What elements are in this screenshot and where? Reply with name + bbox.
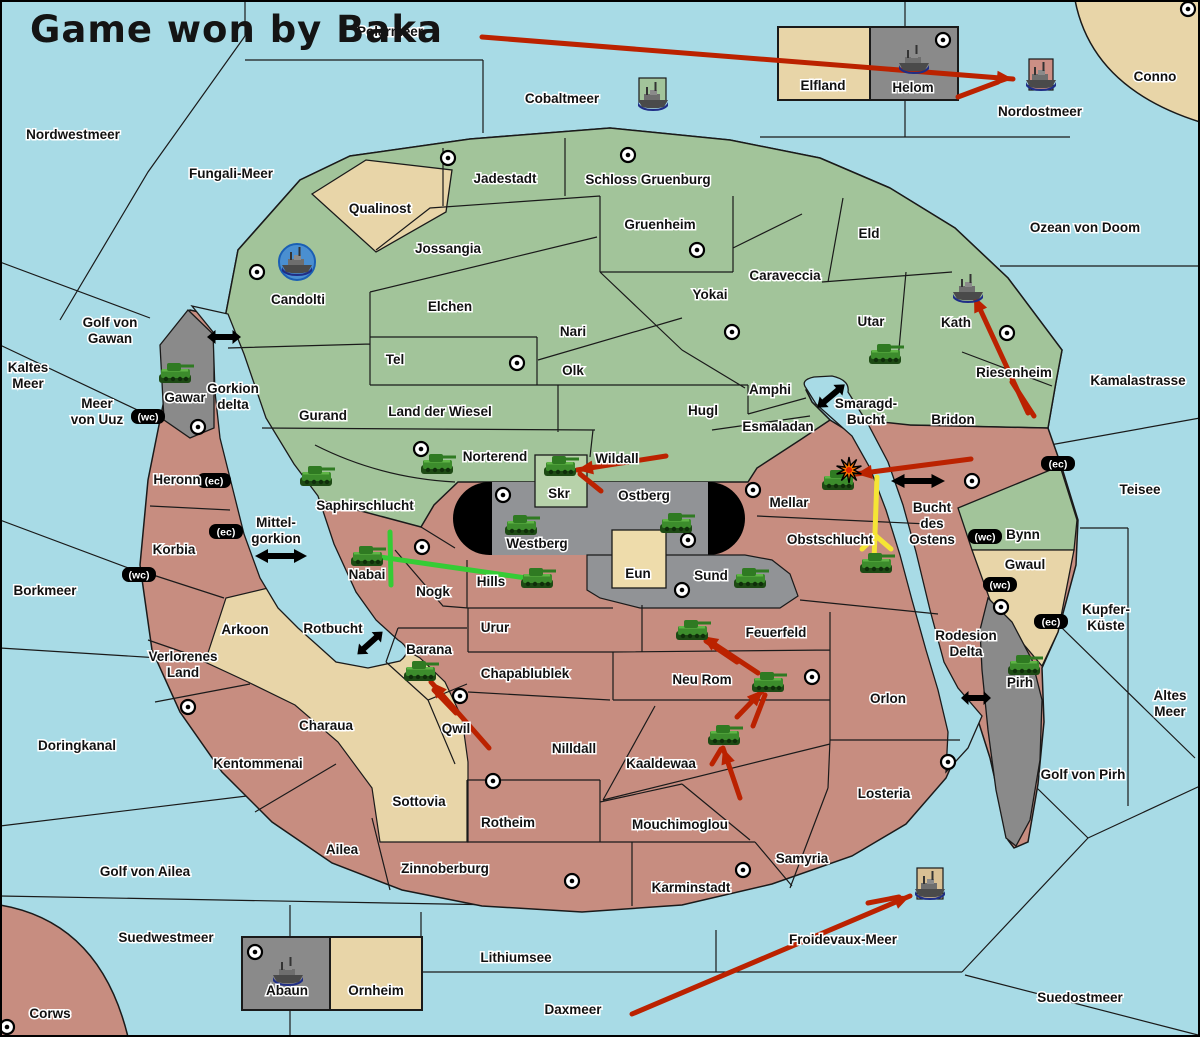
label-eun: Eun [625, 566, 651, 581]
label-rotheim: Rotheim [481, 815, 535, 830]
crossing-badge-label: (wc) [138, 412, 159, 424]
label-mellar: Mellar [769, 495, 809, 510]
label-wildall: Wildall [595, 451, 638, 466]
label-elfland: Elfland [800, 78, 845, 93]
label-gawar: Gawar [164, 390, 206, 405]
town-marker-icon [496, 488, 510, 502]
crossing-badge-label: (wc) [129, 570, 150, 582]
town-marker-icon [725, 325, 739, 339]
label-cobaltmeer: Cobaltmeer [525, 91, 600, 106]
town-marker-icon [936, 33, 950, 47]
town-marker-icon [415, 540, 429, 554]
town-marker-icon [248, 945, 262, 959]
label-borkmeer: Borkmeer [13, 583, 77, 598]
label-teisee: Teisee [1119, 482, 1161, 497]
town-marker-icon [441, 151, 455, 165]
label-conno: Conno [1134, 69, 1177, 84]
town-marker-icon [1181, 2, 1195, 16]
label-altes-meer: AltesMeer [1153, 688, 1186, 719]
label-arkoon: Arkoon [221, 622, 268, 637]
town-marker-icon [965, 474, 979, 488]
label-daxmeer: Daxmeer [544, 1002, 602, 1017]
label-saphirschlucht: Saphirschlucht [316, 498, 414, 513]
town-marker-icon [453, 689, 467, 703]
label-mouchimoglou: Mouchimoglou [632, 817, 728, 832]
label-ostberg: Ostberg [618, 488, 670, 503]
label-zinnoberburg: Zinnoberburg [401, 861, 489, 876]
label-hills: Hills [477, 574, 506, 589]
label-charaua: Charaua [299, 718, 354, 733]
crossing-badge-label: (wc) [990, 580, 1011, 592]
label-losteria: Losteria [858, 786, 911, 801]
crossing-badge-label: (ec) [217, 527, 236, 539]
label-amphi: Amphi [749, 382, 791, 397]
label-nabai: Nabai [349, 567, 386, 582]
label-suedostmeer: Suedostmeer [1037, 990, 1123, 1005]
town-marker-icon [681, 533, 695, 547]
town-marker-icon [414, 442, 428, 456]
town-marker-icon [736, 863, 750, 877]
label-lithiumsee: Lithiumsee [480, 950, 552, 965]
label-samyria: Samyria [776, 851, 829, 866]
town-marker-icon [181, 700, 195, 714]
explosion-core [846, 467, 852, 473]
label-pirh: Pirh [1007, 675, 1033, 690]
label-urur: Urur [481, 620, 510, 635]
label-kaltes-meer: KaltesMeer [8, 360, 49, 391]
label-bynn: Bynn [1006, 527, 1040, 542]
label-suedwestmeer: Suedwestmeer [118, 930, 214, 945]
town-marker-icon [1000, 326, 1014, 340]
label-caraveccia: Caraveccia [749, 268, 821, 283]
label-froidevaux-meer: Froidevaux-Meer [789, 932, 898, 947]
town-marker-icon [994, 600, 1008, 614]
label-kaaldewaa: Kaaldewaa [626, 756, 696, 771]
label-yokai: Yokai [692, 287, 727, 302]
label-orlon: Orlon [870, 691, 906, 706]
label-doringkanal: Doringkanal [38, 738, 116, 753]
label-gwaul: Gwaul [1005, 557, 1046, 572]
label-barana: Barana [406, 642, 452, 657]
label-esmaladan: Esmaladan [742, 419, 813, 434]
crossing-badge-label: (wc) [975, 532, 996, 544]
label-rotbucht: Rotbucht [303, 621, 363, 636]
label-nordwestmeer: Nordwestmeer [26, 127, 121, 142]
label-golf-von-pirh: Golf von Pirh [1041, 767, 1126, 782]
label-fungali-meer: Fungali-Meer [189, 166, 274, 181]
label-elchen: Elchen [428, 299, 472, 314]
town-marker-icon [675, 583, 689, 597]
label-schloss-gruenburg: Schloss Gruenburg [585, 172, 710, 187]
map-title: Game won by Baka [30, 8, 443, 51]
crossing-badge-label: (ec) [1042, 617, 1061, 629]
label-ozean-von-doom: Ozean von Doom [1030, 220, 1140, 235]
label-obstschlucht: Obstschlucht [787, 532, 874, 547]
label-kamalastrasse: Kamalastrasse [1090, 373, 1186, 388]
town-marker-icon [0, 1020, 14, 1034]
label-kentommenai: Kentommenai [213, 756, 302, 771]
label-qualinost: Qualinost [349, 201, 412, 216]
label-kath: Kath [941, 315, 971, 330]
label-hugl: Hugl [688, 403, 718, 418]
label-korbia: Korbia [153, 542, 196, 557]
town-marker-icon [486, 774, 500, 788]
town-marker-icon [746, 483, 760, 497]
town-marker-icon [621, 148, 635, 162]
label-corws: Corws [29, 1006, 70, 1021]
label-riesenheim: Riesenheim [976, 365, 1052, 380]
label-land-der-wiesel: Land der Wiesel [388, 404, 491, 419]
label-norterend: Norterend [463, 449, 528, 464]
label-sund: Sund [694, 568, 728, 583]
label-jossangia: Jossangia [415, 241, 482, 256]
label-eld: Eld [858, 226, 879, 241]
label-feuerfeld: Feuerfeld [746, 625, 807, 640]
label-nari: Nari [560, 324, 586, 339]
label-candolti: Candolti [271, 292, 325, 307]
label-nordostmeer: Nordostmeer [998, 104, 1083, 119]
town-marker-icon [805, 670, 819, 684]
town-marker-icon [565, 874, 579, 888]
label-mittel-gorkion: Mittel-gorkion [251, 515, 301, 546]
town-marker-icon [690, 243, 704, 257]
label-golf-von-ailea: Golf von Ailea [100, 864, 191, 879]
label-ailea: Ailea [326, 842, 359, 857]
label-golf-von-gawan: Golf vonGawan [83, 315, 138, 346]
label-heronn: Heronn [153, 472, 200, 487]
label-westberg: Westberg [506, 536, 567, 551]
town-marker-icon [191, 420, 205, 434]
label-nogk: Nogk [416, 584, 450, 599]
label-qwil: Qwil [442, 721, 471, 736]
game-map-stage: (wc)(ec)(ec)(wc)(ec)(wc)(wc)(ec) Polarme… [0, 0, 1200, 1037]
label-skr: Skr [548, 486, 571, 501]
label-nilldall: Nilldall [552, 741, 596, 756]
label-kupfer-kueste: Kupfer-Küste [1082, 602, 1130, 633]
crossing-badge-label: (ec) [205, 476, 224, 488]
label-tel: Tel [386, 352, 405, 367]
label-jadestadt: Jadestadt [473, 171, 537, 186]
label-chapablublek: Chapablublek [481, 666, 570, 681]
label-gurand: Gurand [299, 408, 347, 423]
yellow-support-arrow [874, 477, 877, 561]
town-marker-icon [941, 755, 955, 769]
label-ornheim: Ornheim [348, 983, 404, 998]
label-olk: Olk [562, 363, 584, 378]
label-bridon: Bridon [931, 412, 975, 427]
crossing-badge-label: (ec) [1049, 459, 1068, 471]
label-gruenheim: Gruenheim [624, 217, 695, 232]
label-abaun: Abaun [266, 983, 308, 998]
label-helom: Helom [892, 80, 933, 95]
town-marker-icon [510, 356, 524, 370]
game-map: (wc)(ec)(ec)(wc)(ec)(wc)(wc)(ec) Polarme… [0, 0, 1200, 1037]
town-marker-icon [250, 265, 264, 279]
region-ornheim-box[interactable] [330, 937, 422, 1010]
label-sottovia: Sottovia [392, 794, 446, 809]
label-neu-rom: Neu Rom [672, 672, 731, 687]
label-karminstadt: Karminstadt [652, 880, 731, 895]
label-utar: Utar [857, 314, 885, 329]
